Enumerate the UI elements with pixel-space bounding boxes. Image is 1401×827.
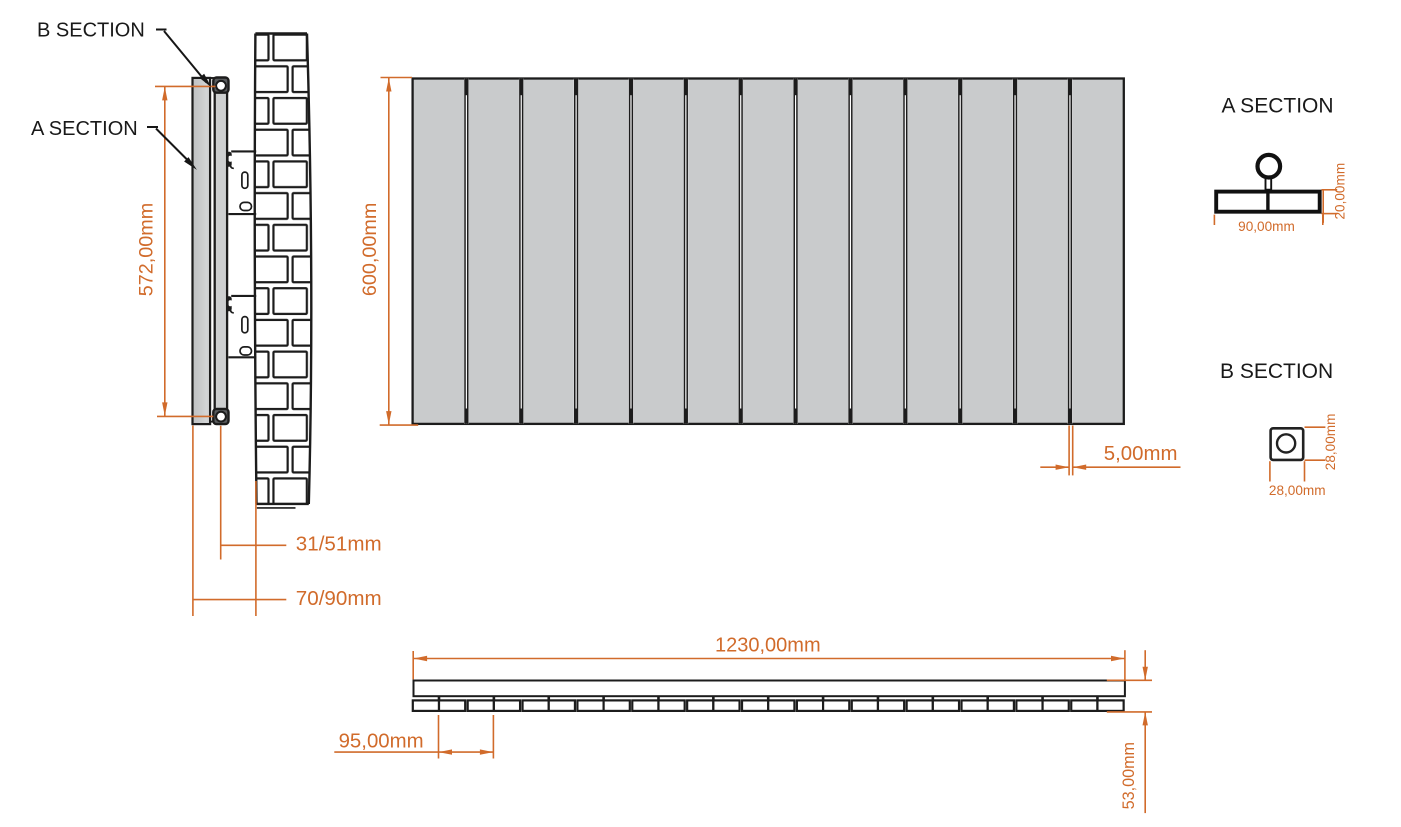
svg-text:600,00mm: 600,00mm [359, 203, 381, 296]
svg-text:95,00mm: 95,00mm [339, 730, 424, 752]
svg-text:90,00mm: 90,00mm [1238, 219, 1295, 234]
svg-text:28,00mm: 28,00mm [1323, 414, 1338, 471]
svg-text:28,00mm: 28,00mm [1269, 483, 1326, 498]
svg-text:20,00mm: 20,00mm [1333, 163, 1348, 220]
svg-text:53,00mm: 53,00mm [1120, 742, 1138, 809]
svg-text:31/51mm: 31/51mm [296, 532, 382, 555]
svg-text:B SECTION: B SECTION [1220, 360, 1333, 383]
svg-text:5,00mm: 5,00mm [1104, 443, 1178, 465]
svg-text:1230,00mm: 1230,00mm [715, 635, 821, 657]
svg-text:A SECTION: A SECTION [31, 118, 138, 140]
svg-text:572,00mm: 572,00mm [135, 203, 157, 296]
svg-text:70/90mm: 70/90mm [296, 587, 382, 610]
svg-text:B SECTION: B SECTION [37, 20, 145, 42]
svg-text:A SECTION: A SECTION [1222, 95, 1334, 118]
